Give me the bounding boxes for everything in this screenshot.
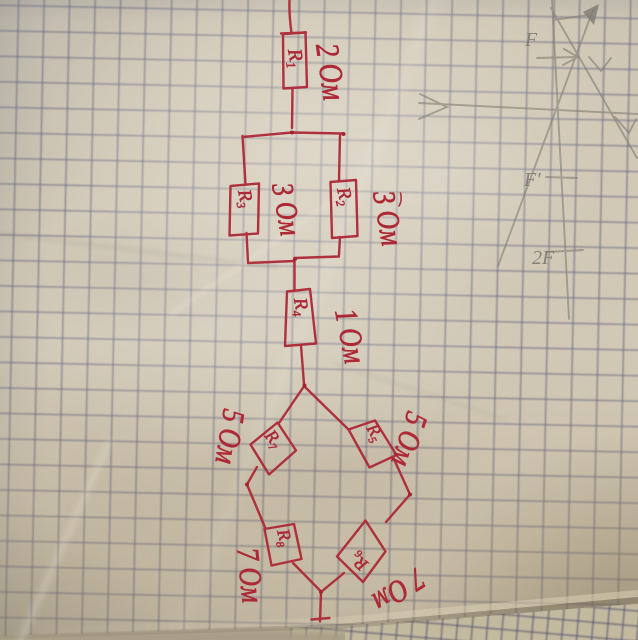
svg-text:5 Ом: 5 Ом bbox=[208, 407, 251, 467]
svg-text:F': F' bbox=[523, 169, 541, 191]
svg-text:F: F bbox=[524, 29, 538, 51]
svg-text:3 Ом: 3 Ом bbox=[264, 180, 307, 239]
svg-text:3 Ом: 3 Ом bbox=[365, 187, 409, 248]
svg-text:R8: R8 bbox=[270, 526, 297, 549]
svg-text:R3: R3 bbox=[231, 187, 257, 210]
svg-text:7 Ом: 7 Ом bbox=[366, 561, 431, 620]
svg-text:2F: 2F bbox=[532, 247, 555, 269]
svg-text:R2: R2 bbox=[330, 184, 357, 208]
svg-text:R4: R4 bbox=[287, 295, 313, 317]
svg-text:7 Ом: 7 Ом bbox=[229, 546, 270, 604]
svg-text:2 Ом: 2 Ом bbox=[308, 41, 353, 103]
svg-text:5 Ом: 5 Ом bbox=[384, 408, 434, 471]
svg-text:1 Ом: 1 Ом bbox=[327, 306, 372, 367]
svg-text:R1: R1 bbox=[281, 46, 308, 70]
